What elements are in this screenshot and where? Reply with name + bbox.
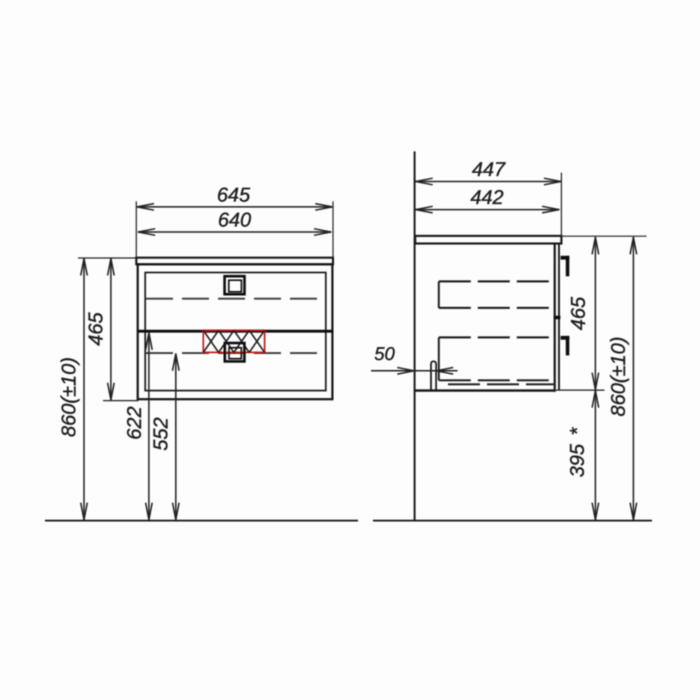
svg-text:465: 465 (568, 296, 590, 330)
svg-text:395 *: 395 * (567, 426, 589, 477)
svg-text:645: 645 (217, 184, 251, 206)
svg-text:447: 447 (472, 159, 506, 181)
svg-text:442: 442 (470, 187, 503, 209)
svg-text:552: 552 (151, 417, 173, 450)
svg-text:622: 622 (124, 406, 146, 439)
svg-text:640: 640 (218, 209, 251, 231)
svg-text:465: 465 (86, 311, 108, 345)
svg-text:50: 50 (374, 343, 395, 364)
svg-text:860(±10): 860(±10) (608, 337, 630, 417)
svg-text:860(±10): 860(±10) (59, 357, 81, 437)
